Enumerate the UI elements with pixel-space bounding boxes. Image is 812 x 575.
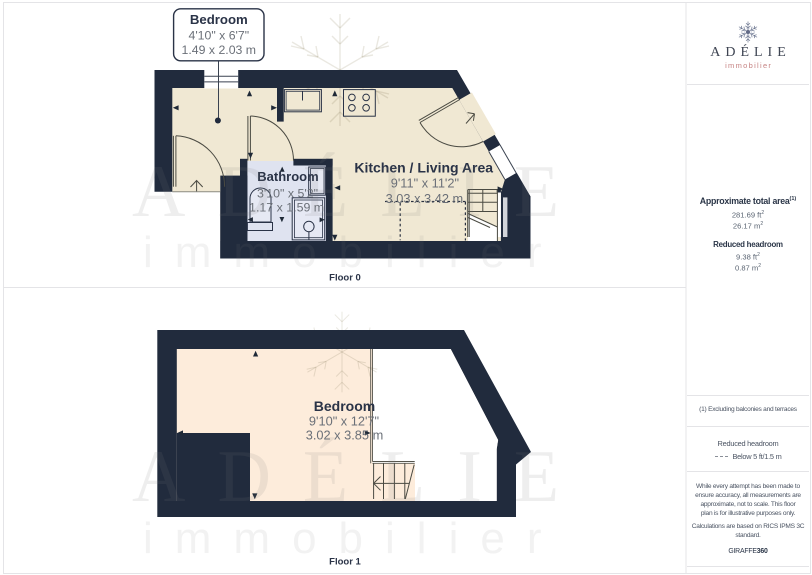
svg-text:9'10" x 12'7": 9'10" x 12'7" xyxy=(309,414,379,429)
svg-text:immobilier: immobilier xyxy=(143,514,563,563)
svg-text:ADÉLIE: ADÉLIE xyxy=(132,436,591,518)
svg-text:Bedroom: Bedroom xyxy=(314,398,375,414)
svg-text:Bedroom: Bedroom xyxy=(190,12,248,27)
svg-text:immobilier: immobilier xyxy=(143,228,563,277)
svg-text:ADÉLIE: ADÉLIE xyxy=(132,151,591,233)
svg-text:1.49 x 2.03 m: 1.49 x 2.03 m xyxy=(182,43,257,57)
svg-text:4'10" x 6'7": 4'10" x 6'7" xyxy=(188,29,249,43)
